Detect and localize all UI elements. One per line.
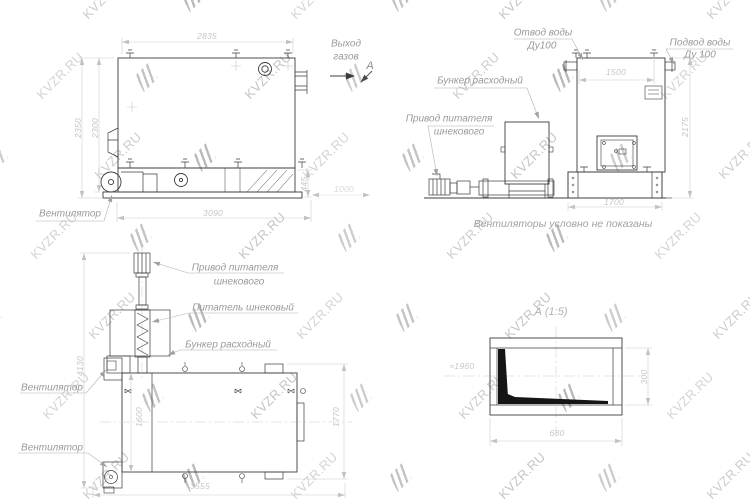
- fuel-inlet-funnel: [108, 128, 118, 157]
- plan-view-leaders: [18, 262, 298, 467]
- screw-feeder-plan: [107, 253, 170, 373]
- cad-drawing-canvas: KVZR.RUKVZR.RUKVZR.RUKVZR.RUKVZR.RUKVZR.…: [0, 0, 750, 500]
- gas-outlet-plan: [265, 364, 283, 373]
- feed-hopper-front: [505, 122, 549, 184]
- ash-conveyor-front: [568, 172, 662, 198]
- plan-view-linework: [100, 248, 352, 493]
- plan-view-dimensions: [80, 253, 348, 498]
- section-view-arrow: [361, 71, 372, 82]
- door-handle: [619, 149, 626, 154]
- flange-port: [259, 63, 272, 76]
- side-view-leaders: [36, 195, 112, 221]
- nameplate: [645, 86, 662, 99]
- base-frame: [103, 192, 302, 198]
- front-view-dimensions: [568, 56, 694, 211]
- gas-flow-arrow: [330, 71, 372, 82]
- drawing-linework: [0, 0, 750, 500]
- side-view-dimensions: [78, 38, 370, 222]
- front-view-linework: [424, 50, 675, 198]
- gas-outlet-duct: [295, 70, 307, 94]
- front-view-leaders: [428, 39, 733, 176]
- safety-valve-icons: [126, 50, 292, 58]
- boiler-front: [577, 58, 665, 172]
- fire-door: [597, 136, 637, 170]
- boiler-plan: [122, 373, 297, 472]
- screw-drive-motor: [429, 174, 554, 197]
- feed-hopper-plan: [110, 310, 170, 356]
- side-view-linework: [101, 50, 307, 198]
- ash-conveyor-side: [118, 168, 295, 192]
- weld-fill-profile: [498, 349, 608, 404]
- detail-view-linework: [443, 326, 640, 432]
